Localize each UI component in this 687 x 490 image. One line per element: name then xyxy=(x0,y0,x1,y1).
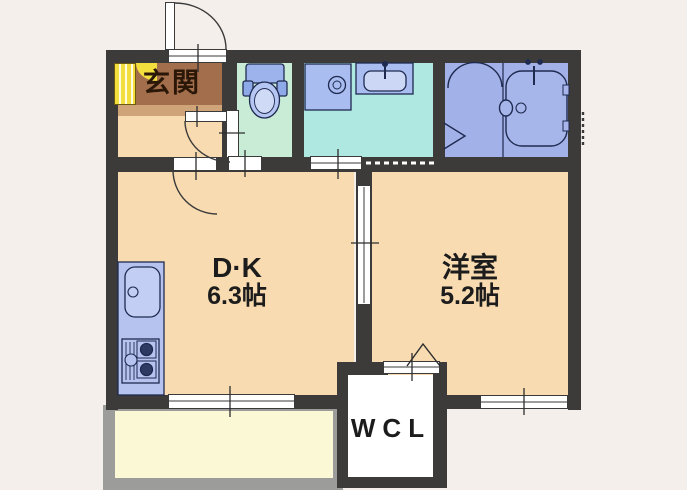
kitchen-counter xyxy=(118,262,164,395)
dk-label: D·K 6.3帖 xyxy=(167,253,307,310)
western-size: 5.2帖 xyxy=(400,283,540,310)
vanity-sink-icon xyxy=(356,62,413,94)
gas-stove-icon xyxy=(122,339,159,383)
western-room-label: 洋室 5.2帖 xyxy=(400,253,540,310)
genkan-hall-door-arc xyxy=(185,121,230,162)
genkan-label: 玄関 xyxy=(126,69,218,98)
tick-marks xyxy=(196,44,524,417)
bathroom-folding-door-icon xyxy=(444,123,465,149)
wcl-label: WCL xyxy=(344,414,438,442)
dk-size: 6.3帖 xyxy=(167,283,307,310)
kitchen-sink-icon xyxy=(125,267,160,317)
western-name: 洋室 xyxy=(400,253,540,283)
washing-machine-icon xyxy=(305,64,351,110)
toilet-icon xyxy=(243,64,287,118)
floorplan: 玄関 D·K 6.3帖 洋室 5.2帖 WCL xyxy=(0,0,687,490)
entrance-door-arc xyxy=(175,3,226,49)
bathtub-icon xyxy=(448,60,569,157)
dk-name: D·K xyxy=(167,253,307,283)
hall-dk-door-arc xyxy=(173,170,217,214)
